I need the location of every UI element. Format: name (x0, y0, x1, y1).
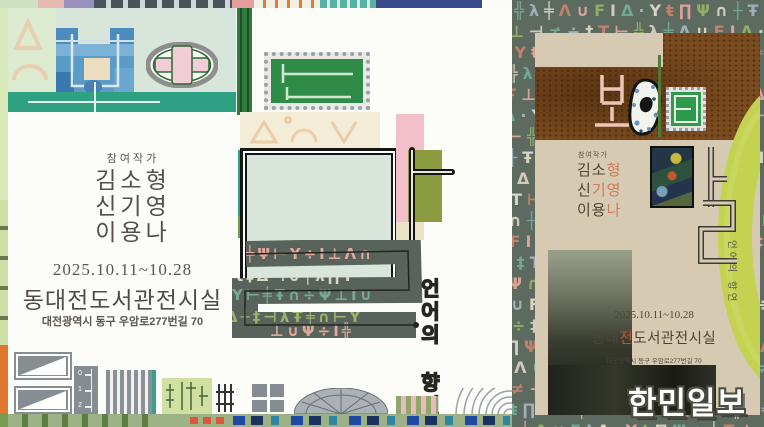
exhibition-dates: 2025.10.11~10.28 (590, 309, 718, 321)
venue-tail: 도서관전시실 (633, 331, 716, 347)
dark-glyph-icon (216, 382, 234, 414)
artist-name: 이용나 (8, 219, 258, 245)
border-segment (376, 0, 482, 8)
pale-column (8, 8, 56, 92)
exhibition-dates: 2025.10.11~10.28 (0, 260, 245, 280)
ruler-tick (85, 374, 92, 376)
blue-squares (233, 416, 510, 425)
svg-text:╬ŧ‡Δ⊣∪┼λ∏T: ╬ŧ‡Δ⊣∪┼λ∏T (230, 266, 356, 285)
border-segment (38, 0, 64, 8)
artist-name-tail: 형 (607, 162, 622, 179)
svg-text:⊥∪Ψ÷I╬: ⊥∪Ψ÷I╬ (270, 321, 354, 338)
green-bars (8, 414, 158, 427)
ruler-mark: 2 (78, 402, 82, 409)
flag-blocks-icon (14, 352, 72, 414)
border-segment (64, 0, 94, 8)
ruler-mark: 0 (78, 370, 82, 377)
faint-glyphs-icon (240, 112, 380, 148)
collage-top-border (0, 0, 512, 8)
border-segment (94, 0, 232, 8)
artist-list: 김소형 신기영 이용나 (577, 161, 621, 221)
green-stamp (264, 52, 370, 110)
participants-label: 참여작가 (8, 150, 258, 166)
artist-name: 김소형 (577, 161, 621, 181)
artist-name-head: 이용 (577, 202, 607, 219)
window-squares (252, 384, 284, 412)
venue-name: 동대전도서관전시실 (578, 327, 730, 348)
square (252, 384, 267, 397)
green-vertical-bar (237, 8, 252, 115)
svg-text:Y⊢╪Ŧ∩÷Ψ⊥I∪: Y⊢╪Ŧ∩÷Ψ⊥I∪ (231, 285, 375, 304)
venue-head: 동대 (592, 331, 620, 347)
border-segment (0, 413, 8, 427)
artist-name: 신기영 (577, 181, 621, 201)
stamp-glyph-icon (271, 59, 363, 103)
ruler-mark: 1 (78, 386, 82, 393)
bottom-collage-strip (8, 414, 512, 427)
border-segment (232, 0, 254, 8)
exhibition-poster-small: 참여작가 김소형 신기영 이용나 언어의 향연 2025.10.11~10.28… (535, 33, 760, 415)
teal-bar (8, 92, 236, 112)
hangul-a-stroke-icon (402, 146, 458, 246)
border-segment (482, 0, 512, 8)
striped-block (106, 370, 156, 414)
artist-name: 이용나 (577, 201, 621, 221)
framed-artwork (650, 146, 694, 208)
cream-collage-band (240, 112, 380, 148)
arc-fan-icon (452, 388, 512, 414)
artist-name: 김소형 (8, 167, 258, 193)
white-line (94, 82, 96, 112)
artist-name-tail: 나 (607, 202, 622, 219)
venue-accent: 전 (619, 331, 633, 347)
green-line (658, 55, 661, 137)
border-segment (254, 0, 320, 8)
collage-left-border (0, 8, 8, 427)
square (270, 400, 285, 413)
exhibition-poster-large: Ŧ╪Ψ⊢Y÷I⊥Λ∩ ╬ŧ‡Δ⊣∪┼λ∏T Y⊢╪Ŧ∩÷Ψ⊥I∪ Δ┼‡⊣λŦ╪… (0, 0, 512, 427)
venue-address: 대전광역시 동구 우암로277번길 70 (578, 355, 730, 365)
faint-glyphs-icon (8, 8, 56, 92)
border-segment (0, 8, 8, 200)
circle-cross-icon (146, 42, 218, 88)
ruler-block: 0 1 2 (74, 366, 98, 414)
poster-collage-photo: Ŧ⊥⊣≠÷‡T⊢╬λ╪Λ∪FIΔ·Yŧ∏Ψ∩┼Ŧ⊥⊣≠÷‡T⊢╬λ╪Λ∪FIΔ·… (0, 0, 764, 427)
venue-address: 대전광역시 동구 우암로277번길 70 (0, 313, 245, 329)
hangul-bo-outline-icon (592, 73, 632, 139)
artist-name-head: 신 (577, 182, 592, 199)
border-segment (320, 0, 376, 8)
participants-label: 참여작가 (578, 150, 608, 160)
ruler-tick (85, 406, 92, 408)
venue-name: 동대전도서관전시실 (0, 281, 245, 315)
salmon-dashes (190, 417, 226, 424)
square (252, 400, 267, 413)
vertical-subtitle: 언어의 향연 (414, 278, 443, 408)
hangul-rieul-collage-icon: Ŧ╪Ψ⊢Y÷I⊥Λ∩ ╬ŧ‡Δ⊣∪┼λ∏T Y⊢╪Ŧ∩÷Ψ⊥I∪ Δ┼‡⊣λŦ╪… (230, 240, 426, 338)
fan-semicircle-icon (294, 388, 388, 414)
border-segment (0, 0, 38, 8)
newspaper-logo: 한민일보 (628, 378, 746, 423)
artist-name-tail: 기영 (592, 182, 622, 199)
green-glyph-block (162, 378, 212, 414)
pink-green-stripes (396, 396, 438, 414)
artist-name-head: 김소 (577, 162, 607, 179)
stamp-face (271, 59, 363, 103)
ruler-tick (85, 390, 92, 392)
beige-notch (535, 33, 663, 67)
small-glyphs-icon (162, 378, 212, 414)
artist-list: 김소형 신기영 이용나 (8, 167, 258, 245)
border-segment (0, 345, 8, 413)
square (270, 384, 285, 397)
artist-name: 신기영 (8, 193, 258, 219)
